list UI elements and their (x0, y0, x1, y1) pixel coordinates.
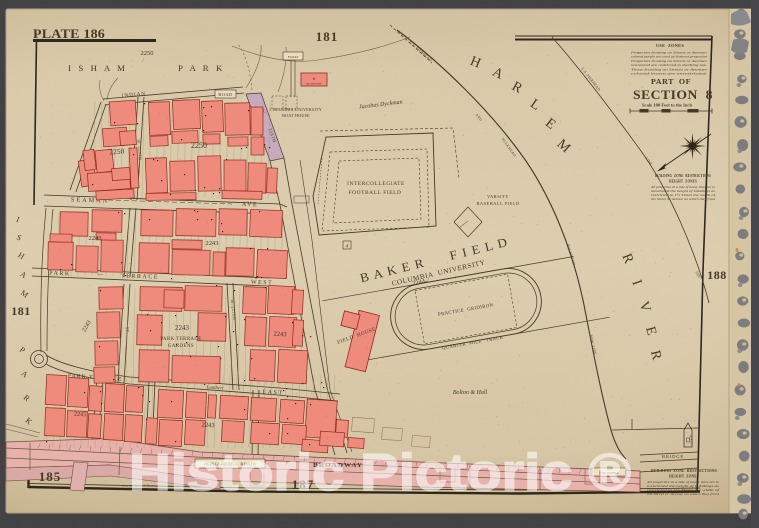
svg-text:2243: 2243 (273, 331, 286, 339)
svg-text:HEIGHT ZONES: HEIGHT ZONES (669, 475, 699, 479)
svg-text:COLUMBIA UNIVERSITY: COLUMBIA UNIVERSITY (270, 107, 322, 112)
svg-text:PARK TERRACE: PARK TERRACE (160, 337, 201, 342)
svg-text:FOOTBALL FIELD: FOOTBALL FIELD (349, 190, 402, 196)
svg-text:2250: 2250 (191, 141, 207, 150)
svg-text:2243: 2243 (175, 324, 190, 332)
svg-text:colored brown are unrestricted: colored brown are unrestricted. (631, 72, 707, 76)
svg-text:2243: 2243 (74, 412, 86, 419)
svg-text:PLATE 186: PLATE 186 (33, 26, 105, 41)
svg-text:the Street or Avenue on which: the Street or Avenue on which they front (647, 492, 719, 496)
svg-text:INTERCOLLEGIATE: INTERCOLLEGIATE (347, 181, 405, 187)
svg-text:AVE: AVE (242, 201, 259, 209)
svg-text:185: 185 (39, 469, 62, 484)
svg-text:2250: 2250 (141, 50, 154, 57)
svg-text:USE ZONES: USE ZONES (656, 43, 684, 48)
svg-text:BASEBALL FIELD: BASEBALL FIELD (476, 201, 519, 206)
svg-text:2243: 2243 (201, 422, 214, 430)
svg-text:BOAT HOUSE: BOAT HOUSE (307, 83, 322, 86)
svg-text:Lambert: Lambert (205, 386, 224, 392)
svg-text:BOAT HOUSE: BOAT HOUSE (282, 113, 310, 118)
svg-text:2243: 2243 (89, 235, 102, 242)
svg-text:EAST: EAST (262, 389, 283, 396)
svg-text:GARDENS: GARDENS (168, 344, 194, 349)
svg-text:I S H A M: I S H A M (68, 63, 128, 73)
svg-text:188: 188 (707, 268, 727, 282)
svg-text:the Street or Avenue on which: the Street or Avenue on which they front (651, 197, 715, 201)
svg-text:ST.: ST. (125, 327, 130, 333)
svg-text:2250: 2250 (109, 146, 125, 156)
svg-text:Bolton & Hall: Bolton & Hall (453, 390, 488, 396)
svg-text:BUILDING ZONE RESTRICTIONS: BUILDING ZONE RESTRICTIONS (651, 469, 717, 473)
svg-text:—: — (96, 272, 104, 278)
svg-text:Scale 100 Feet to the Inch: Scale 100 Feet to the Inch (642, 104, 692, 108)
svg-text:BUILDING ZONE RESTRICTIONS: BUILDING ZONE RESTRICTIONS (655, 174, 711, 178)
svg-text:HEIGHT ZONES: HEIGHT ZONES (669, 180, 697, 184)
svg-text:Historic Pictoric ®: Historic Pictoric ® (129, 444, 631, 502)
svg-text:VARSITY: VARSITY (487, 194, 509, 199)
svg-text:181: 181 (316, 29, 339, 44)
svg-text:FLOAT: FLOAT (288, 55, 299, 59)
svg-text:2243: 2243 (206, 240, 219, 247)
svg-text:ROAD: ROAD (218, 92, 233, 97)
svg-text:BRIDGE: BRIDGE (662, 454, 684, 459)
svg-text:PART OF: PART OF (651, 77, 691, 86)
svg-text:181: 181 (11, 304, 31, 318)
svg-text:SECTION 8: SECTION 8 (633, 87, 713, 102)
svg-text:PARK: PARK (49, 271, 71, 278)
svg-text:P A R K: P A R K (178, 63, 225, 73)
